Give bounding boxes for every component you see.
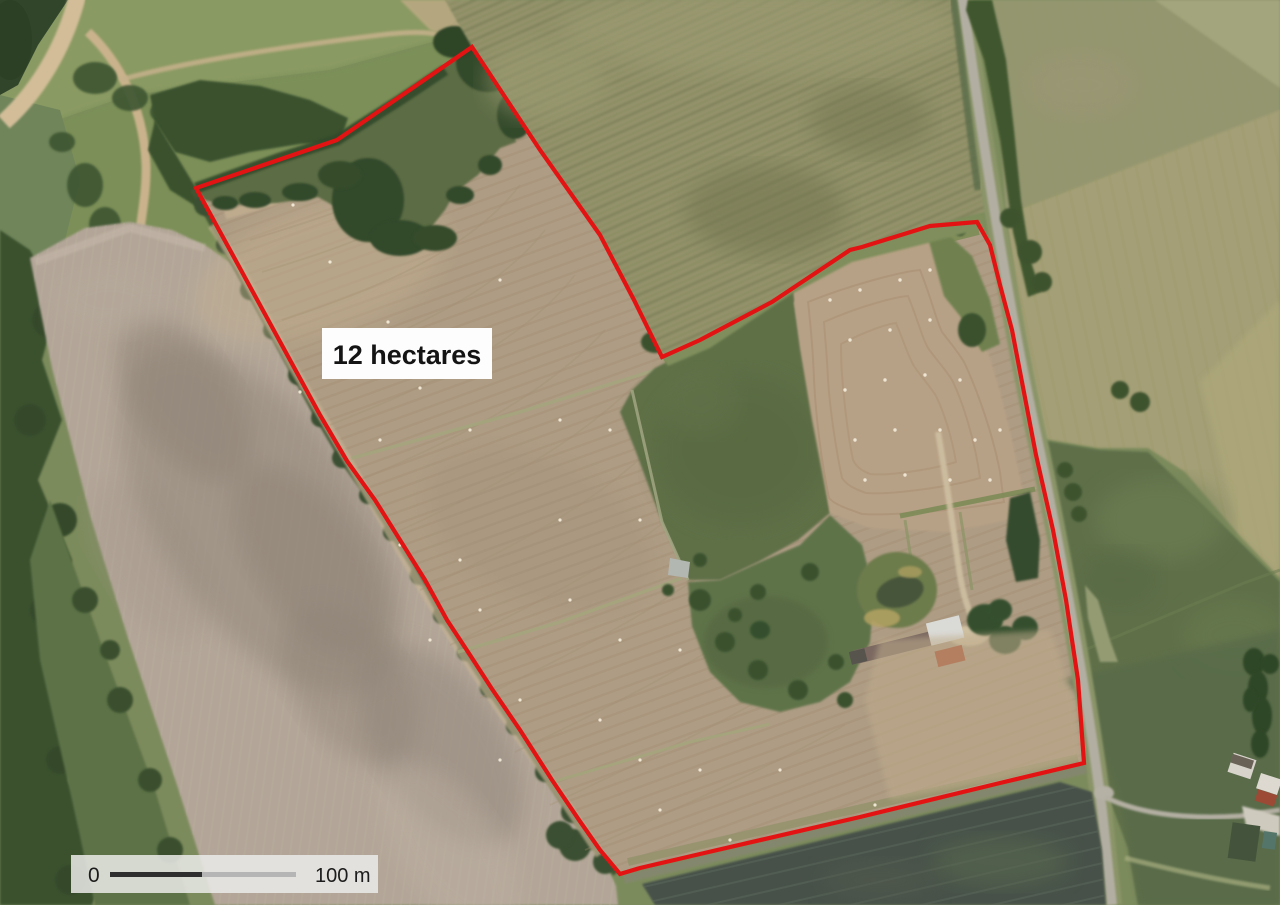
- svg-text:12 hectares: 12 hectares: [333, 340, 482, 370]
- svg-text:100 m: 100 m: [315, 865, 371, 887]
- svg-text:0: 0: [88, 864, 100, 887]
